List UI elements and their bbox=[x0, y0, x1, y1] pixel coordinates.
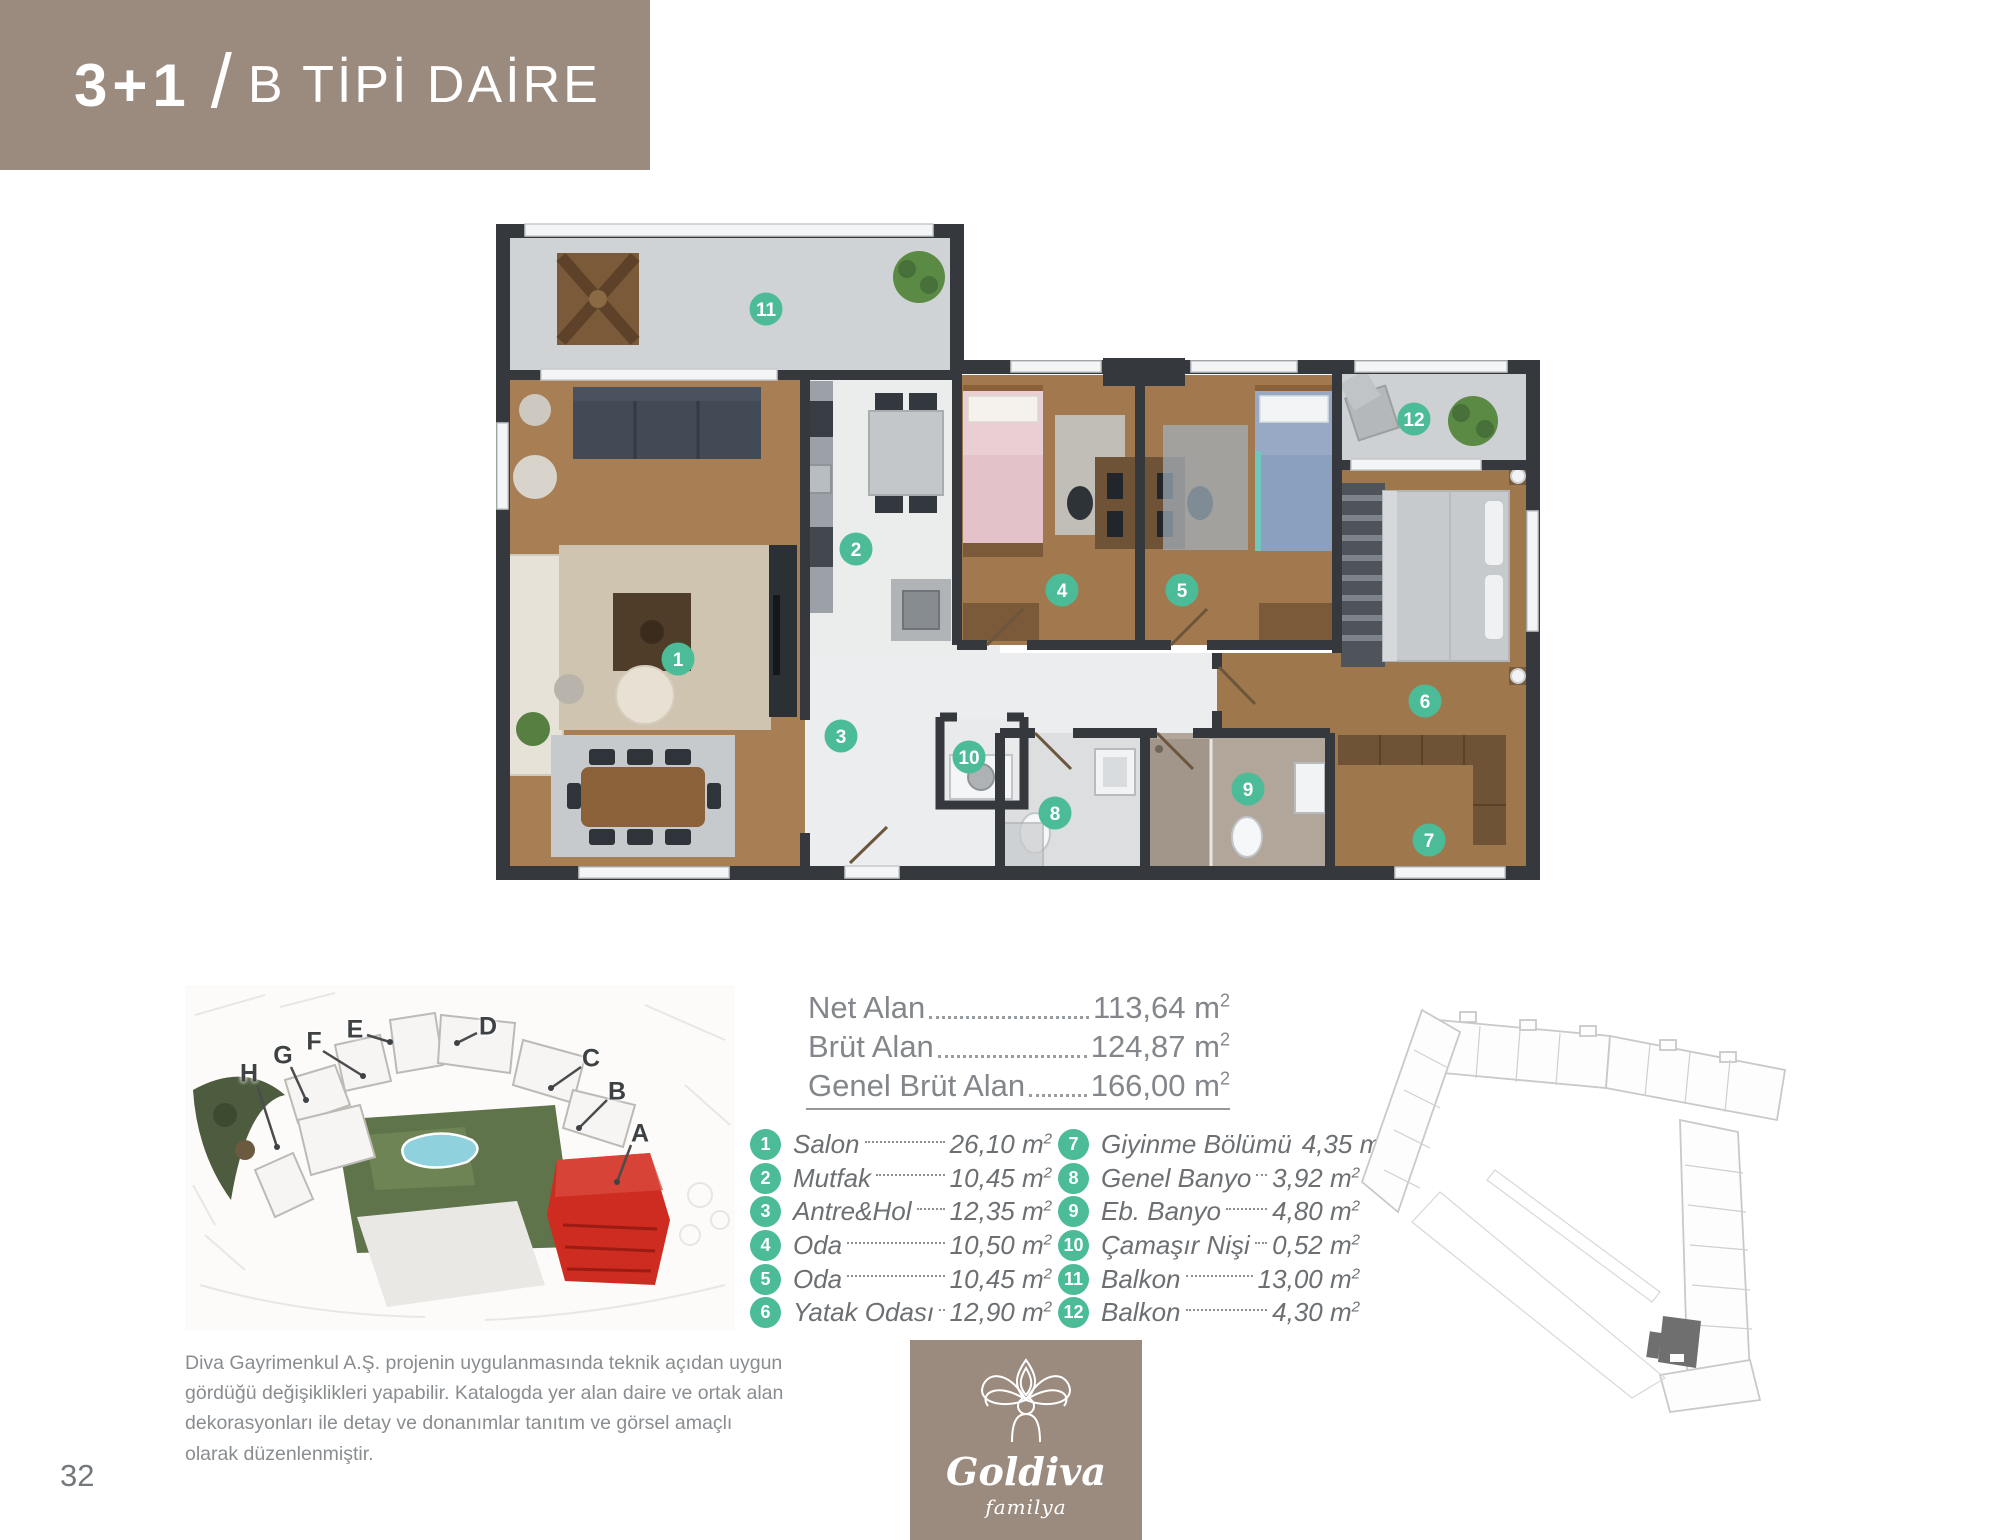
block-label-f: F bbox=[306, 1028, 321, 1057]
room-number-badge: 1 bbox=[750, 1129, 781, 1160]
salon-pouf bbox=[513, 455, 557, 499]
brand-logo-box: Goldiva familya bbox=[910, 1340, 1142, 1540]
tv-unit bbox=[769, 545, 797, 717]
room-area: 10,50 m2 bbox=[950, 1230, 1052, 1261]
room-area: 4,80 m2 bbox=[1272, 1196, 1360, 1227]
svg-text:5: 5 bbox=[1177, 581, 1188, 602]
dotted-leader bbox=[1256, 1174, 1267, 1176]
room-area: 13,00 m2 bbox=[1258, 1264, 1360, 1295]
room-name: Mutfak bbox=[793, 1163, 871, 1194]
room-number-badge: 7 bbox=[1058, 1129, 1089, 1160]
catalog-page: 3+1 / B TİPİ DAİRE bbox=[0, 0, 2000, 1540]
room-name: Salon bbox=[793, 1129, 860, 1160]
svg-text:2: 2 bbox=[851, 540, 862, 561]
block-label-c: C bbox=[582, 1045, 600, 1074]
block-label-a: A bbox=[631, 1120, 649, 1149]
page-title: B TİPİ DAİRE bbox=[248, 55, 601, 115]
area-summary: Net Alan 113,64 m2 Brüt Alan 124,87 m2 G… bbox=[808, 995, 1230, 1112]
unit-type-label: 3+1 bbox=[74, 51, 191, 120]
room-number-badge: 11 bbox=[1058, 1264, 1089, 1295]
page-number: 32 bbox=[60, 1458, 94, 1494]
title-separator: / bbox=[211, 38, 232, 125]
svg-text:10: 10 bbox=[958, 748, 979, 769]
room-row-3: 3 Antre&Hol 12,35 m2 bbox=[750, 1195, 1052, 1229]
room-name: Çamaşır Nişi bbox=[1101, 1230, 1250, 1261]
balcony-plant bbox=[893, 251, 945, 303]
room-name: Giyinme Bölümü bbox=[1101, 1129, 1292, 1160]
kitchen-sink-counter bbox=[891, 579, 951, 641]
svg-text:9: 9 bbox=[1243, 780, 1254, 801]
salon-plant bbox=[516, 712, 550, 746]
room-number-badge: 3 bbox=[750, 1196, 781, 1227]
room-row-1: 1 Salon 26,10 m2 bbox=[750, 1128, 1052, 1162]
room-area: 10,45 m2 bbox=[950, 1264, 1052, 1295]
room-marker-9: 9 bbox=[1232, 773, 1265, 806]
dotted-leader bbox=[929, 1016, 1089, 1019]
separator-line bbox=[806, 1108, 1230, 1110]
dotted-leader bbox=[939, 1309, 945, 1311]
room4-bed bbox=[963, 385, 1043, 557]
room-marker-7: 7 bbox=[1413, 824, 1446, 857]
room5-wardrobe bbox=[1259, 603, 1333, 641]
block-label-h: H bbox=[240, 1060, 258, 1089]
room-row-4: 4 Oda 10,50 m2 bbox=[750, 1229, 1052, 1263]
highlighted-unit bbox=[1646, 1316, 1701, 1368]
disclaimer-text: Diva Gayrimenkul A.Ş. projenin uygulanma… bbox=[185, 1348, 785, 1469]
area-row-brut: Brüt Alan 124,87 m2 bbox=[808, 1034, 1230, 1065]
salon-sofa bbox=[573, 387, 761, 459]
svg-text:4: 4 bbox=[1057, 581, 1068, 602]
svg-text:8: 8 bbox=[1050, 804, 1061, 825]
svg-text:6: 6 bbox=[1420, 692, 1431, 713]
dotted-leader bbox=[1255, 1242, 1267, 1244]
room-number-badge: 6 bbox=[750, 1297, 781, 1328]
dotted-leader bbox=[847, 1242, 945, 1244]
coffee-table-decor bbox=[640, 620, 664, 644]
brand-name: Goldiva bbox=[910, 1453, 1142, 1491]
room-area: 3,92 m2 bbox=[1272, 1163, 1360, 1194]
area-row-net: Net Alan 113,64 m2 bbox=[808, 995, 1230, 1026]
room-number-badge: 2 bbox=[750, 1163, 781, 1194]
room-row-6: 6 Yatak Odası 12,90 m2 bbox=[750, 1296, 1052, 1330]
park-tree bbox=[213, 1103, 237, 1127]
room-name: Oda bbox=[793, 1230, 842, 1261]
floor-plan-drawing: 1 2 3 4 5 6 7 8 9 10 11 12 bbox=[495, 215, 1555, 887]
dotted-leader bbox=[876, 1174, 945, 1176]
corridor-floor bbox=[1000, 653, 1217, 733]
page-title-banner: 3+1 / B TİPİ DAİRE bbox=[0, 0, 650, 170]
site-outline-drawing bbox=[1360, 980, 1920, 1420]
balcony-table bbox=[557, 253, 639, 345]
kitchen-table bbox=[869, 393, 943, 513]
area-value: 166,00 m2 bbox=[1091, 1068, 1230, 1104]
site-outline-plan bbox=[1360, 980, 1920, 1420]
room-marker-3: 3 bbox=[825, 720, 858, 753]
area-value: 113,64 m2 bbox=[1093, 990, 1230, 1026]
room-row-2: 2 Mutfak 10,45 m2 bbox=[750, 1162, 1052, 1196]
room-marker-2: 2 bbox=[840, 533, 873, 566]
dotted-leader bbox=[1186, 1309, 1268, 1311]
plaza bbox=[357, 1201, 545, 1307]
svg-text:1: 1 bbox=[673, 650, 684, 671]
room-row-5: 5 Oda 10,45 m2 bbox=[750, 1262, 1052, 1296]
room-name: Eb. Banyo bbox=[1101, 1196, 1221, 1227]
room-area: 4,30 m2 bbox=[1272, 1297, 1360, 1328]
room-area: 10,45 m2 bbox=[950, 1163, 1052, 1194]
room-area: 12,35 m2 bbox=[950, 1196, 1052, 1227]
site-overview-image: A B C D E F G H bbox=[185, 985, 735, 1331]
room4-wardrobe bbox=[963, 603, 1039, 641]
room5-bed bbox=[1255, 385, 1333, 551]
room-marker-1: 1 bbox=[662, 643, 695, 676]
room-row-7: 7 Giyinme Bölümü 4,35 m2 bbox=[1058, 1128, 1360, 1162]
room5-rug bbox=[1163, 425, 1248, 550]
room-number-badge: 12 bbox=[1058, 1297, 1089, 1328]
room-number-badge: 5 bbox=[750, 1264, 781, 1295]
room-marker-5: 5 bbox=[1166, 574, 1199, 607]
block-label-b: B bbox=[608, 1078, 626, 1107]
balcony12-plant bbox=[1448, 396, 1498, 446]
room-number-badge: 10 bbox=[1058, 1230, 1089, 1261]
svg-text:7: 7 bbox=[1424, 831, 1435, 852]
bedroom-rug bbox=[1341, 483, 1385, 667]
area-row-genel-brut: Genel Brüt Alan 166,00 m2 bbox=[808, 1073, 1230, 1104]
salon-side-table bbox=[519, 394, 551, 426]
room-marker-10: 10 bbox=[953, 741, 986, 774]
room-marker-6: 6 bbox=[1409, 685, 1442, 718]
lotus-logo-icon bbox=[966, 1354, 1086, 1446]
svg-text:11: 11 bbox=[756, 300, 777, 321]
svg-text:12: 12 bbox=[1403, 410, 1424, 431]
master-bed bbox=[1383, 491, 1509, 661]
svg-text:3: 3 bbox=[836, 727, 847, 748]
block-label-e: E bbox=[347, 1016, 364, 1045]
room-marker-12: 12 bbox=[1398, 403, 1431, 436]
pool bbox=[402, 1134, 477, 1168]
dotted-leader bbox=[1186, 1275, 1253, 1277]
room-row-10: 10 Çamaşır Nişi 0,52 m2 bbox=[1058, 1229, 1360, 1263]
dotted-leader bbox=[938, 1055, 1087, 1058]
block-label-d: D bbox=[479, 1013, 497, 1042]
dotted-leader bbox=[1029, 1094, 1087, 1097]
room-name: Yatak Odası bbox=[793, 1297, 934, 1328]
park-path bbox=[235, 1140, 255, 1160]
building-a-highlight bbox=[547, 1153, 670, 1285]
floor-plan: 1 2 3 4 5 6 7 8 9 10 11 12 bbox=[495, 215, 1555, 887]
brand-subtitle: familya bbox=[910, 1495, 1142, 1519]
area-value: 124,87 m2 bbox=[1091, 1029, 1230, 1065]
dotted-leader bbox=[865, 1141, 945, 1143]
room-number-badge: 9 bbox=[1058, 1196, 1089, 1227]
room-row-8: 8 Genel Banyo 3,92 m2 bbox=[1058, 1162, 1360, 1196]
kitchen-counter bbox=[807, 381, 833, 613]
area-label: Net Alan bbox=[808, 990, 925, 1026]
room-number-badge: 8 bbox=[1058, 1163, 1089, 1194]
block-label-g: G bbox=[273, 1042, 292, 1071]
area-label: Genel Brüt Alan bbox=[808, 1068, 1025, 1104]
room-name: Balkon bbox=[1101, 1264, 1181, 1295]
room-area: 26,10 m2 bbox=[950, 1129, 1052, 1160]
room-row-9: 9 Eb. Banyo 4,80 m2 bbox=[1058, 1195, 1360, 1229]
room-marker-11: 11 bbox=[750, 293, 783, 326]
room-area: 12,90 m2 bbox=[950, 1297, 1052, 1328]
room-area: 0,52 m2 bbox=[1272, 1230, 1360, 1261]
room-list-column-1: 1 Salon 26,10 m2 2 Mutfak 10,45 m2 3 Ant… bbox=[750, 1128, 1052, 1330]
area-label: Brüt Alan bbox=[808, 1029, 934, 1065]
salon-armchair bbox=[616, 666, 674, 724]
room-name: Oda bbox=[793, 1264, 842, 1295]
salon-pouf-2 bbox=[554, 674, 584, 704]
room-marker-8: 8 bbox=[1039, 797, 1072, 830]
room-name: Antre&Hol bbox=[793, 1196, 912, 1227]
room-marker-4: 4 bbox=[1046, 574, 1079, 607]
room-number-badge: 4 bbox=[750, 1230, 781, 1261]
room-row-11: 11 Balkon 13,00 m2 bbox=[1058, 1262, 1360, 1296]
room-name: Balkon bbox=[1101, 1297, 1181, 1328]
dotted-leader bbox=[917, 1208, 945, 1210]
parcel-outlines bbox=[1412, 1170, 1665, 1398]
room-list-column-2: 7 Giyinme Bölümü 4,35 m2 8 Genel Banyo 3… bbox=[1058, 1128, 1360, 1330]
room-name: Genel Banyo bbox=[1101, 1163, 1251, 1194]
site-overview-drawing bbox=[185, 985, 735, 1331]
dotted-leader bbox=[847, 1275, 945, 1277]
dotted-leader bbox=[1226, 1208, 1267, 1210]
room-row-12: 12 Balkon 4,30 m2 bbox=[1058, 1296, 1360, 1330]
